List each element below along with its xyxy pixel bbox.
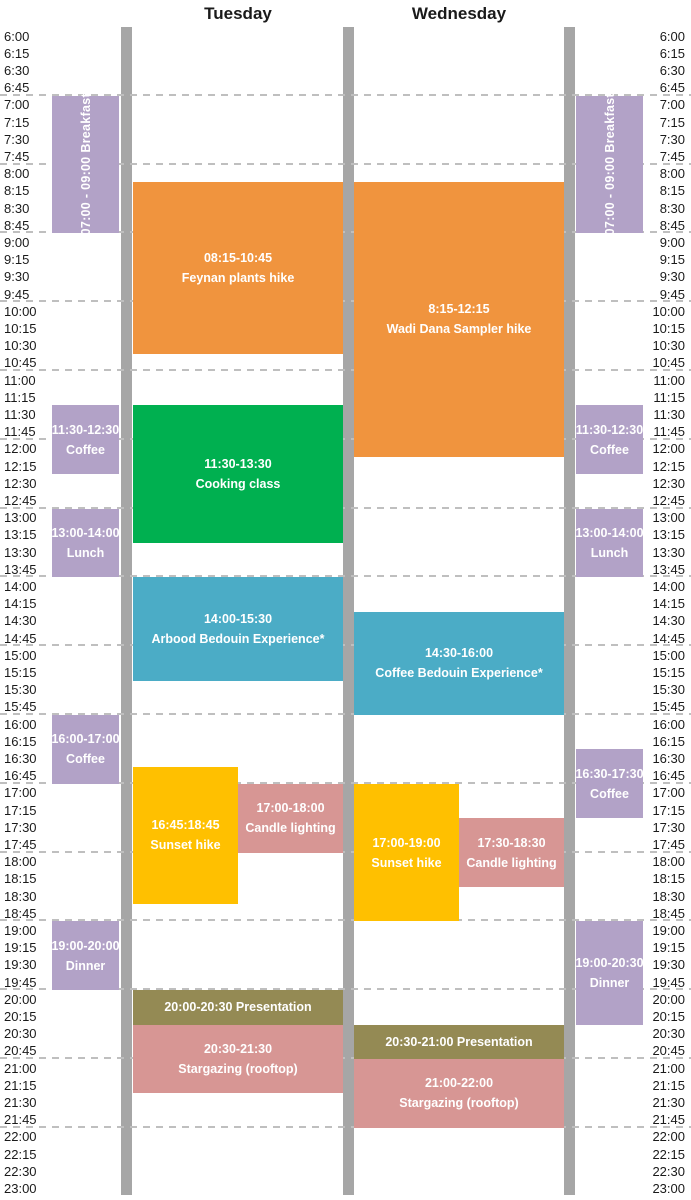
time-label-left: 15:15	[4, 664, 37, 681]
time-label-left: 10:15	[4, 320, 37, 337]
meal-block-lunch: 13:00-14:00Lunch	[576, 509, 643, 578]
time-label-left: 11:45	[4, 423, 36, 440]
time-label-left: 19:15	[4, 939, 37, 956]
meal-block-coffee-morning: 11:30-12:30Coffee	[576, 405, 643, 474]
time-label-left: 11:00	[4, 372, 36, 389]
event-label: 17:00-19:00	[372, 833, 440, 853]
time-label-left: 14:30	[4, 612, 37, 629]
time-label-left: 7:15	[4, 114, 29, 131]
time-label-left: 21:15	[4, 1077, 37, 1094]
time-label-left: 20:30	[4, 1025, 37, 1042]
time-label-right: 15:00	[639, 647, 685, 664]
meal-block-coffee-afternoon: 16:00-17:00Coffee	[52, 715, 119, 784]
event-label: 19:00-20:30	[575, 953, 643, 973]
time-label-left: 19:45	[4, 974, 37, 991]
event-block-wadi-dana-sampler-hike: 8:15-12:15Wadi Dana Sampler hike	[354, 182, 564, 457]
event-label: Dinner	[66, 956, 106, 976]
time-label-right: 18:00	[639, 853, 685, 870]
time-label-right: 6:45	[639, 79, 685, 96]
event-label: 14:00-15:30	[204, 609, 272, 629]
event-label: Lunch	[591, 543, 629, 563]
time-label-right: 21:15	[639, 1077, 685, 1094]
event-label: Sunset hike	[371, 853, 441, 873]
event-label: 07:00 - 09:00 Breakfast	[603, 93, 617, 235]
time-label-right: 16:30	[639, 750, 685, 767]
time-label-left: 7:00	[4, 96, 29, 113]
time-label-left: 13:15	[4, 526, 37, 543]
time-label-left: 20:15	[4, 1008, 37, 1025]
event-label: 11:30-13:30	[204, 454, 271, 474]
event-label: Coffee	[66, 749, 105, 769]
time-label-right: 8:00	[639, 165, 685, 182]
day-header-wednesday: Wednesday	[354, 3, 564, 25]
time-label-right: 15:15	[639, 664, 685, 681]
time-label-left: 18:15	[4, 870, 37, 887]
time-label-right: 21:00	[639, 1060, 685, 1077]
time-label-left: 11:15	[4, 389, 36, 406]
time-label-left: 11:30	[4, 406, 36, 423]
hour-gridline	[0, 369, 691, 371]
time-label-right: 13:45	[639, 561, 685, 578]
event-label: Stargazing (rooftop)	[178, 1059, 297, 1079]
time-label-left: 15:30	[4, 681, 37, 698]
hour-gridline	[0, 1057, 691, 1059]
time-label-right: 17:00	[639, 784, 685, 801]
event-label: 17:30-18:30	[477, 833, 545, 853]
event-block-presentation: 20:30-21:00 Presentation	[354, 1025, 564, 1059]
time-label-left: 13:30	[4, 544, 37, 561]
time-label-right: 10:15	[639, 320, 685, 337]
event-label: 16:30-17:30	[575, 764, 643, 784]
time-label-right: 22:00	[639, 1128, 685, 1145]
time-label-right: 10:45	[639, 354, 685, 371]
event-label: Stargazing (rooftop)	[399, 1093, 518, 1113]
time-label-right: 14:30	[639, 612, 685, 629]
time-label-left: 21:45	[4, 1111, 37, 1128]
time-label-left: 16:45	[4, 767, 37, 784]
time-label-right: 8:30	[639, 200, 685, 217]
time-label-right: 9:15	[639, 251, 685, 268]
time-label-right: 21:30	[639, 1094, 685, 1111]
time-label-right: 17:45	[639, 836, 685, 853]
meal-block-breakfast: 07:00 - 09:00 Breakfast	[52, 96, 119, 234]
time-label-right: 18:30	[639, 888, 685, 905]
time-label-right: 7:45	[639, 148, 685, 165]
event-block-stargazing-rooftop: 21:00-22:00Stargazing (rooftop)	[354, 1059, 564, 1128]
column-separator-bar	[121, 27, 132, 1195]
time-label-left: 12:30	[4, 475, 37, 492]
time-label-left: 8:00	[4, 165, 29, 182]
time-label-left: 14:45	[4, 630, 37, 647]
time-label-left: 22:00	[4, 1128, 37, 1145]
time-label-right: 6:15	[639, 45, 685, 62]
time-label-left: 6:15	[4, 45, 29, 62]
time-label-right: 22:30	[639, 1163, 685, 1180]
time-label-left: 9:15	[4, 251, 29, 268]
time-label-left: 12:15	[4, 458, 37, 475]
time-label-right: 14:45	[639, 630, 685, 647]
time-label-right: 9:30	[639, 268, 685, 285]
time-label-left: 16:15	[4, 733, 37, 750]
event-block-candle-lighting: 17:00-18:00Candle lighting	[238, 784, 343, 853]
hour-gridline	[0, 300, 691, 302]
event-block-arbood-bedouin-experience: 14:00-15:30Arbood Bedouin Experience*	[133, 577, 343, 680]
event-label: Sunset hike	[150, 835, 220, 855]
time-label-right: 12:00	[639, 440, 685, 457]
time-label-left: 17:00	[4, 784, 37, 801]
event-label: Candle lighting	[466, 853, 556, 873]
time-label-right: 20:00	[639, 991, 685, 1008]
time-label-right: 7:15	[639, 114, 685, 131]
time-label-left: 18:45	[4, 905, 37, 922]
time-label-right: 8:45	[639, 217, 685, 234]
event-label: Feynan plants hike	[182, 268, 295, 288]
time-label-right: 12:45	[639, 492, 685, 509]
meal-block-breakfast: 07:00 - 09:00 Breakfast	[576, 96, 643, 234]
time-label-left: 14:00	[4, 578, 37, 595]
time-label-right: 17:15	[639, 802, 685, 819]
time-label-right: 9:00	[639, 234, 685, 251]
time-label-left: 15:00	[4, 647, 37, 664]
time-label-right: 10:00	[639, 303, 685, 320]
event-block-sunset-hike: 16:45:18:45Sunset hike	[133, 767, 238, 905]
time-label-right: 8:15	[639, 182, 685, 199]
time-label-left: 20:00	[4, 991, 37, 1008]
event-label: Coffee	[590, 784, 629, 804]
time-label-right: 19:45	[639, 974, 685, 991]
time-label-right: 13:15	[639, 526, 685, 543]
time-label-left: 13:45	[4, 561, 37, 578]
time-label-left: 16:30	[4, 750, 37, 767]
event-label: 13:00-14:00	[51, 523, 119, 543]
event-label: Cooking class	[196, 474, 281, 494]
event-label: 19:00-20:00	[51, 936, 119, 956]
time-label-right: 16:15	[639, 733, 685, 750]
time-label-left: 17:30	[4, 819, 37, 836]
event-label: 11:30-12:30	[576, 420, 643, 440]
time-label-left: 8:30	[4, 200, 29, 217]
time-label-right: 19:00	[639, 922, 685, 939]
time-label-right: 6:00	[639, 28, 685, 45]
time-label-left: 18:00	[4, 853, 37, 870]
event-label: Coffee	[590, 440, 629, 460]
time-label-right: 23:00	[639, 1180, 685, 1197]
event-label: 16:45:18:45	[151, 815, 219, 835]
event-block-sunset-hike: 17:00-19:00Sunset hike	[354, 784, 459, 922]
time-label-left: 19:00	[4, 922, 37, 939]
event-label: 20:30-21:00 Presentation	[385, 1032, 532, 1052]
time-label-right: 20:30	[639, 1025, 685, 1042]
time-label-left: 17:15	[4, 802, 37, 819]
time-label-right: 20:45	[639, 1042, 685, 1059]
time-label-right: 12:30	[639, 475, 685, 492]
time-label-left: 21:00	[4, 1060, 37, 1077]
time-label-right: 13:00	[639, 509, 685, 526]
time-label-right: 12:15	[639, 458, 685, 475]
time-label-right: 15:45	[639, 698, 685, 715]
column-separator-bar	[564, 27, 575, 1195]
time-label-left: 22:15	[4, 1146, 37, 1163]
time-label-right: 9:45	[639, 286, 685, 303]
column-separator-bar	[343, 27, 354, 1195]
time-label-right: 11:30	[639, 406, 685, 423]
time-label-right: 18:15	[639, 870, 685, 887]
event-block-candle-lighting: 17:30-18:30Candle lighting	[459, 818, 564, 887]
time-label-left: 16:00	[4, 716, 37, 733]
event-label: Candle lighting	[245, 818, 335, 838]
event-label: 13:00-14:00	[575, 523, 643, 543]
time-label-left: 9:00	[4, 234, 29, 251]
time-label-right: 14:15	[639, 595, 685, 612]
time-label-left: 9:30	[4, 268, 29, 285]
event-block-presentation: 20:00-20:30 Presentation	[133, 990, 343, 1024]
time-label-left: 23:00	[4, 1180, 37, 1197]
event-label: 8:15-12:15	[428, 299, 489, 319]
time-label-left: 6:45	[4, 79, 29, 96]
time-label-right: 18:45	[639, 905, 685, 922]
time-label-right: 7:00	[639, 96, 685, 113]
time-label-left: 12:00	[4, 440, 37, 457]
event-label: Dinner	[590, 973, 630, 993]
event-label: Coffee Bedouin Experience*	[375, 663, 542, 683]
time-label-right: 21:45	[639, 1111, 685, 1128]
time-label-right: 7:30	[639, 131, 685, 148]
time-label-right: 22:15	[639, 1146, 685, 1163]
time-label-left: 12:45	[4, 492, 37, 509]
time-label-left: 13:00	[4, 509, 37, 526]
event-block-feynan-plants-hike: 08:15-10:45Feynan plants hike	[133, 182, 343, 354]
event-label: 14:30-16:00	[425, 643, 493, 663]
time-label-left: 10:45	[4, 354, 37, 371]
meal-block-coffee-morning: 11:30-12:30Coffee	[52, 405, 119, 474]
time-label-right: 19:30	[639, 956, 685, 973]
hour-gridline	[0, 644, 691, 646]
time-label-left: 17:45	[4, 836, 37, 853]
time-label-right: 16:45	[639, 767, 685, 784]
event-block-cooking-class: 11:30-13:30Cooking class	[133, 405, 343, 543]
event-label: 08:15-10:45	[204, 248, 272, 268]
event-label: Wadi Dana Sampler hike	[387, 319, 532, 339]
meal-block-lunch: 13:00-14:00Lunch	[52, 509, 119, 578]
time-label-right: 16:00	[639, 716, 685, 733]
meal-block-dinner: 19:00-20:30Dinner	[576, 921, 643, 1024]
time-label-right: 19:15	[639, 939, 685, 956]
event-label: 17:00-18:00	[256, 798, 324, 818]
event-label: Lunch	[67, 543, 105, 563]
event-label: Arbood Bedouin Experience*	[152, 629, 325, 649]
event-label: 20:30-21:30	[204, 1039, 272, 1059]
time-label-left: 8:15	[4, 182, 29, 199]
event-label: 11:30-12:30	[52, 420, 119, 440]
time-label-left: 10:30	[4, 337, 37, 354]
event-label: 16:00-17:00	[51, 729, 119, 749]
day-header-tuesday: Tuesday	[133, 3, 343, 25]
event-label: Coffee	[66, 440, 105, 460]
time-label-right: 6:30	[639, 62, 685, 79]
time-label-left: 18:30	[4, 888, 37, 905]
time-label-left: 6:00	[4, 28, 29, 45]
schedule-canvas: Tuesday Wednesday 6:006:156:306:457:007:…	[0, 0, 691, 1200]
time-label-right: 10:30	[639, 337, 685, 354]
event-label: 21:00-22:00	[425, 1073, 493, 1093]
time-label-right: 13:30	[639, 544, 685, 561]
hour-gridline	[0, 851, 691, 853]
time-label-left: 9:45	[4, 286, 29, 303]
time-label-right: 11:00	[639, 372, 685, 389]
time-label-right: 11:45	[639, 423, 685, 440]
time-label-left: 7:45	[4, 148, 29, 165]
time-label-left: 10:00	[4, 303, 37, 320]
event-block-stargazing-rooftop: 20:30-21:30Stargazing (rooftop)	[133, 1025, 343, 1094]
meal-block-coffee-afternoon: 16:30-17:30Coffee	[576, 749, 643, 818]
event-block-coffee-bedouin-experience: 14:30-16:00Coffee Bedouin Experience*	[354, 612, 564, 715]
time-label-left: 14:15	[4, 595, 37, 612]
time-label-left: 22:30	[4, 1163, 37, 1180]
time-label-left: 15:45	[4, 698, 37, 715]
time-label-left: 19:30	[4, 956, 37, 973]
time-label-left: 6:30	[4, 62, 29, 79]
time-label-right: 17:30	[639, 819, 685, 836]
time-label-left: 21:30	[4, 1094, 37, 1111]
time-label-left: 8:45	[4, 217, 29, 234]
time-label-right: 14:00	[639, 578, 685, 595]
hour-gridline	[0, 1126, 691, 1128]
meal-block-dinner: 19:00-20:00Dinner	[52, 921, 119, 990]
event-label: 20:00-20:30 Presentation	[164, 997, 311, 1017]
time-label-left: 7:30	[4, 131, 29, 148]
time-label-right: 15:30	[639, 681, 685, 698]
time-label-left: 20:45	[4, 1042, 37, 1059]
event-label: 07:00 - 09:00 Breakfast	[79, 93, 93, 235]
time-label-right: 11:15	[639, 389, 685, 406]
time-label-right: 20:15	[639, 1008, 685, 1025]
